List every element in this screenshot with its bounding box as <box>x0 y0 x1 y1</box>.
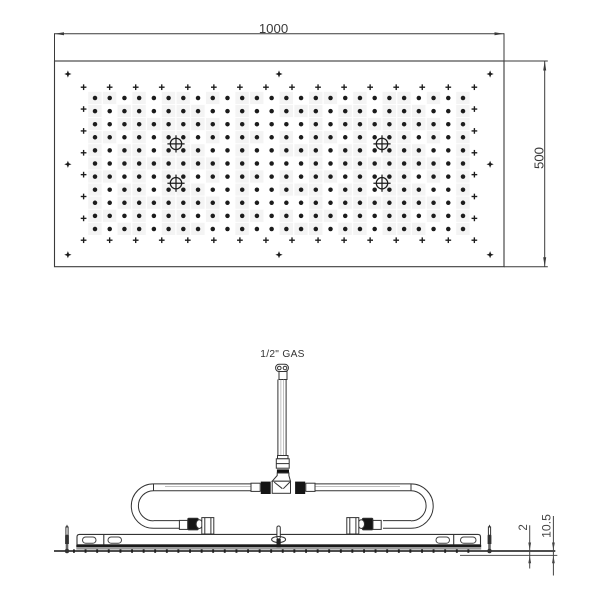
svg-text:2: 2 <box>518 524 530 530</box>
svg-text:10.5: 10.5 <box>540 514 554 538</box>
svg-text:1000: 1000 <box>259 21 288 36</box>
svg-text:500: 500 <box>531 147 546 169</box>
svg-text:1/2" GAS: 1/2" GAS <box>260 349 305 360</box>
